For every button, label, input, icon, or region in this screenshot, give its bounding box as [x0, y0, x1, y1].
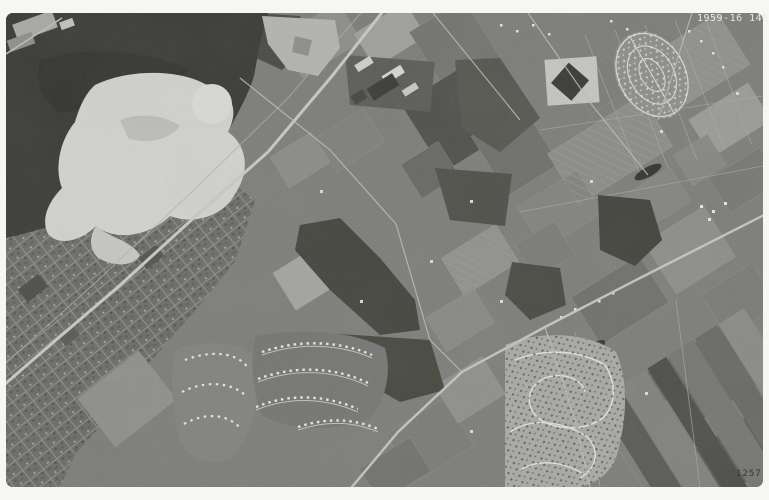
aerial-photo-sheet: 1959-16 1457 1257	[0, 0, 769, 500]
film-grain-overlay	[6, 13, 763, 487]
photo-emulsion	[0, 0, 769, 500]
photo-frame-number: 1257	[736, 469, 762, 479]
aerial-photograph: 1959-16 1457 1257	[0, 0, 769, 500]
photo-index-annotation: 1959-16 1457	[697, 13, 769, 24]
